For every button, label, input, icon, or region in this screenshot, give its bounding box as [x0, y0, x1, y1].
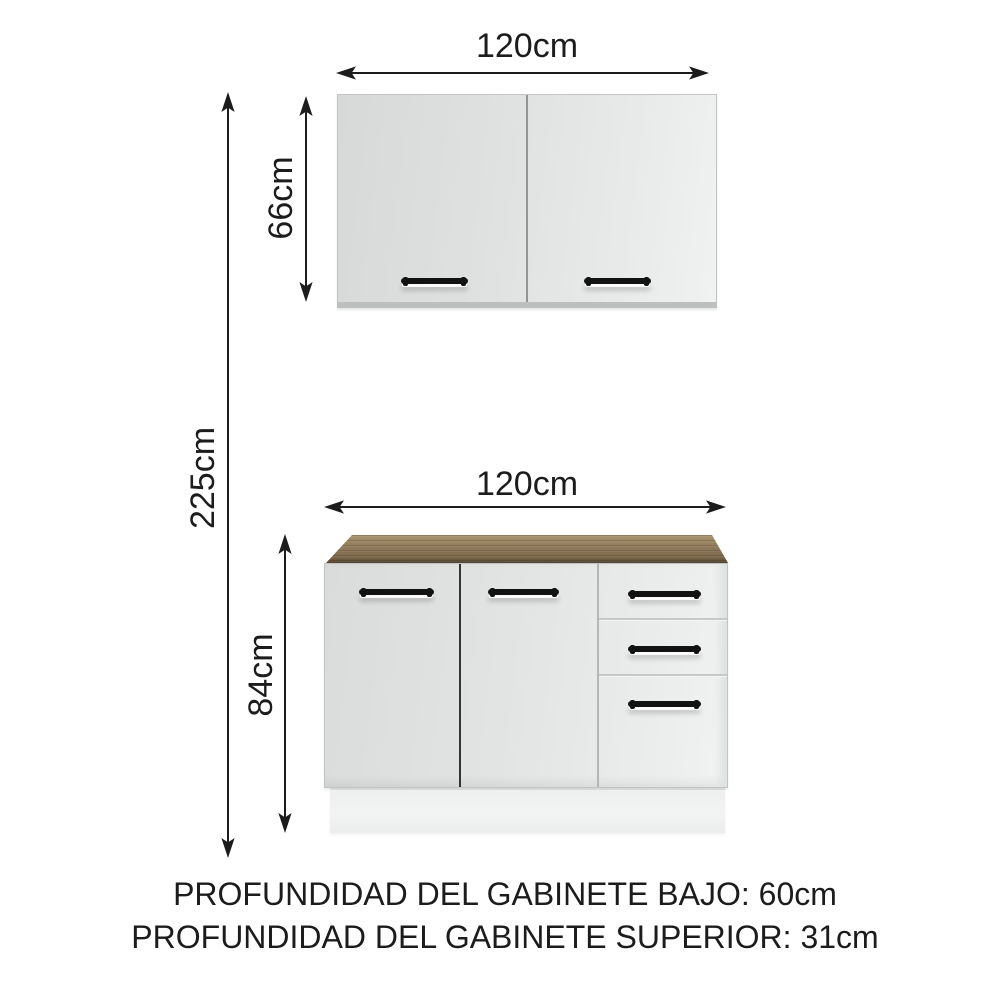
upper-width-arrow-icon — [335, 63, 710, 83]
drawer-handle-2 — [628, 646, 701, 652]
total-height-label: 225cm — [183, 378, 223, 578]
upper-height-label: 66cm — [261, 98, 301, 298]
lower-cabinet — [324, 563, 728, 788]
depth-note-upper: PROFUNDIDAD DEL GABINETE SUPERIOR: 31cm — [5, 917, 1000, 957]
upper-height-arrow-icon — [296, 95, 316, 303]
drawer-handle-3 — [628, 701, 701, 707]
upper-cabinet — [337, 94, 717, 308]
lower-height-arrow-icon — [275, 533, 295, 834]
upper-left-door-handle — [401, 278, 468, 284]
countertop — [326, 535, 728, 563]
drawer-divider-2 — [599, 674, 727, 676]
depth-note-lower: PROFUNDIDAD DEL GABINETE BAJO: 60cm — [5, 874, 1000, 914]
lower-left-door-handle — [359, 589, 434, 595]
lower-middle-door-handle — [488, 589, 559, 595]
total-height-arrow-icon — [218, 91, 238, 859]
drawer-handle-1 — [628, 591, 701, 597]
lower-cabinet-door-gap — [459, 564, 461, 787]
lower-width-arrow-icon — [323, 497, 727, 517]
product-dimension-diagram: 120cm 225cm 66cm 120cm 84cm — [0, 0, 1000, 1000]
upper-right-door-handle — [584, 278, 651, 284]
plinth-base — [330, 788, 725, 833]
drawer-divider-1 — [599, 618, 727, 620]
upper-cabinet-door-gap — [526, 95, 528, 302]
upper-width-label: 120cm — [427, 26, 627, 66]
